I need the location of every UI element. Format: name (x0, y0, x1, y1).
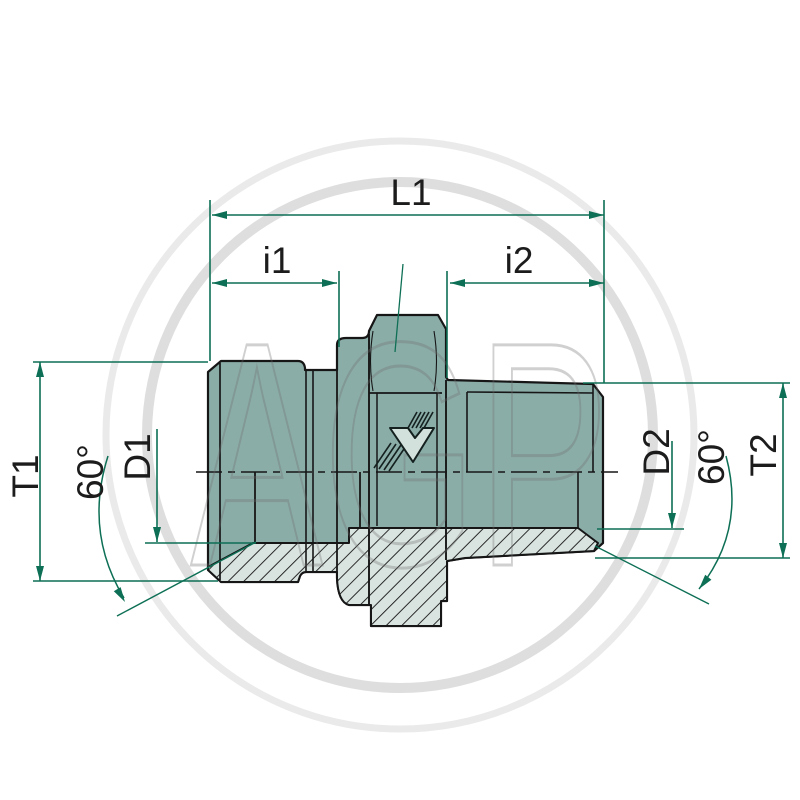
label-angle-right: 60° (691, 429, 732, 485)
label-L1: L1 (390, 172, 431, 213)
technical-drawing: AGP (0, 0, 800, 800)
label-angle-left: 60° (70, 444, 111, 500)
label-T2: T2 (743, 433, 784, 476)
label-i1: i1 (263, 240, 292, 281)
label-D1: D1 (117, 433, 158, 480)
label-T1: T1 (5, 454, 46, 497)
label-D2: D2 (636, 428, 677, 475)
label-i2: i2 (505, 240, 534, 281)
technical-drawing-page: AGP (0, 0, 800, 800)
